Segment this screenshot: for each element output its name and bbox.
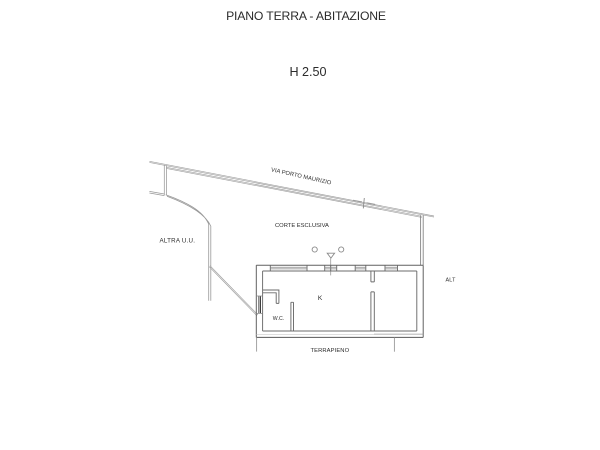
- svg-text:TERRAPIENO: TERRAPIENO: [311, 348, 350, 354]
- svg-text:ALTRA U.U.: ALTRA U.U.: [160, 238, 196, 245]
- svg-text:VIA PORTO MAURIZIO: VIA PORTO MAURIZIO: [270, 167, 332, 186]
- svg-text:K: K: [318, 295, 323, 302]
- svg-text:CORTE ESCLUSIVA: CORTE ESCLUSIVA: [275, 223, 329, 229]
- svg-text:H 2.50: H 2.50: [289, 65, 326, 79]
- svg-text:PIANO TERRA - ABITAZIONE: PIANO TERRA - ABITAZIONE: [226, 9, 386, 23]
- svg-text:W.C.: W.C.: [273, 316, 285, 322]
- svg-text:ALT: ALT: [446, 278, 457, 284]
